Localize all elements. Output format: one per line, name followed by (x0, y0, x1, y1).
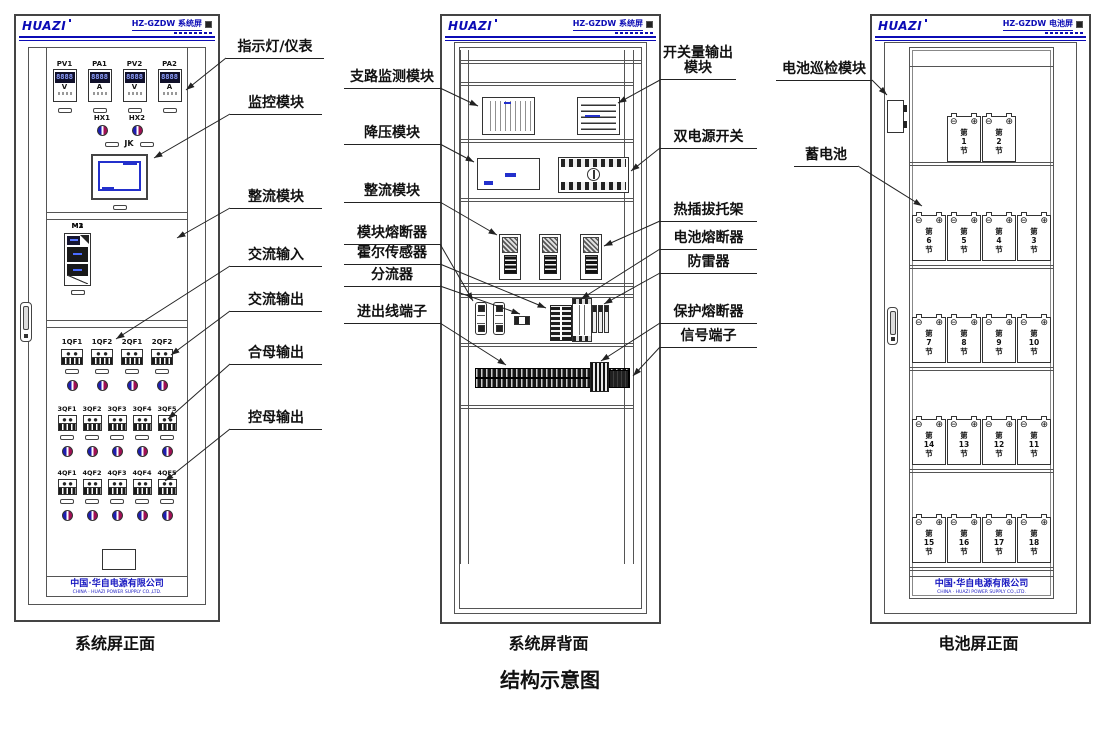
top-beam (909, 66, 1054, 67)
annotation-closing-bus-output: 合母输出 (230, 346, 322, 365)
minus-terminal-icon: ⊖ (985, 216, 993, 227)
label-plate (60, 435, 74, 440)
indicator-lamp-icon (87, 446, 98, 457)
meter-dashes (93, 92, 107, 95)
battery-tab (986, 314, 992, 318)
shelf (460, 405, 634, 409)
plus-terminal-icon: ⊕ (1005, 216, 1013, 227)
meter-dashes (58, 92, 72, 95)
battery-tab (916, 314, 922, 318)
plus-terminal-icon: ⊕ (1005, 420, 1013, 431)
battery-tab (1006, 212, 1012, 216)
annotation-battery-fuse: 电池熔断器 (660, 231, 757, 250)
battery-tab (986, 212, 992, 216)
annotation-dual-power-switch: 双电源开关 (660, 130, 757, 149)
breaker-icon[interactable] (151, 349, 173, 365)
minus-terminal-icon: ⊖ (1020, 318, 1028, 329)
battery-label-suffix: 节 (913, 347, 945, 356)
battery-tab (951, 113, 957, 117)
battery-tab (1021, 314, 1027, 318)
annotation-battery-inspection: 电池巡检模块 (776, 62, 872, 81)
battery-label-prefix: 第 (948, 128, 980, 137)
battery-label-prefix: 第 (1018, 227, 1050, 236)
battery-number: 17 (983, 538, 1015, 547)
header-rule-thin (19, 40, 215, 41)
battery-label-prefix: 第 (948, 329, 980, 338)
label-plate (65, 369, 79, 374)
battery-number: 10 (1018, 338, 1050, 347)
battery-tab (936, 514, 942, 518)
annotation-protection-fuse: 保护熔断器 (660, 305, 757, 324)
huazi-logo: HUAZI (878, 19, 922, 33)
indicator-lamp-icon (67, 380, 78, 391)
battery-tab (1041, 212, 1047, 216)
label-plate (110, 435, 124, 440)
caption-system-front: 系统屏正面 (14, 630, 216, 654)
battery-label-suffix: 节 (1018, 547, 1050, 556)
battery-tab (971, 514, 977, 518)
battery-tab (1006, 314, 1012, 318)
annotation-buck-module: 降压模块 (344, 126, 440, 145)
annotation-control-bus-output: 控母输出 (230, 411, 322, 430)
battery-label-suffix: 节 (983, 449, 1015, 458)
breaker-row-closing-bus: 3QF1 3QF2 3QF3 (46, 405, 188, 457)
battery-label-suffix: 节 (948, 245, 980, 254)
indicator-lamp-icon (97, 125, 108, 136)
corner-mark (80, 235, 89, 244)
meter-name: PA2 (162, 60, 177, 68)
battery-tab (971, 416, 977, 420)
screen-footer (102, 187, 114, 189)
breaker-icon[interactable] (108, 415, 127, 431)
breaker-cell: 1QF2 (91, 338, 113, 391)
module-display (67, 236, 80, 245)
battery-number: 14 (913, 440, 945, 449)
battery-label-prefix: 第 (913, 329, 945, 338)
minus-terminal-icon: ⊖ (1020, 216, 1028, 227)
rectifier-back (499, 234, 521, 280)
battery-tab (1006, 514, 1012, 518)
model-subtext-dashes (1045, 32, 1083, 34)
battery-label-suffix: 节 (1018, 245, 1050, 254)
breaker-cell: 3QF5 (158, 405, 177, 457)
label-plate (93, 108, 107, 113)
label-plate (71, 290, 85, 295)
plus-terminal-icon: ⊕ (935, 216, 943, 227)
label-plate (128, 108, 142, 113)
plus-terminal-icon: ⊕ (1040, 518, 1048, 529)
battery-shelf (909, 469, 1054, 473)
label-plate (135, 499, 149, 504)
structure-diagram: HUAZI HZ-GZDW 系统屏 PV1 8888 V (0, 0, 1100, 756)
meter-name: PA1 (92, 60, 107, 68)
shelf (460, 294, 634, 298)
battery-label-suffix: 节 (983, 547, 1015, 556)
module-block (67, 247, 88, 262)
battery-number: 12 (983, 440, 1015, 449)
battery-tab (971, 212, 977, 216)
top-beam (459, 60, 642, 64)
breaker-name: 1QF1 (62, 338, 82, 347)
battery-number: 18 (1018, 538, 1050, 547)
battery-tab (971, 113, 977, 117)
minus-terminal-icon: ⊖ (915, 420, 923, 431)
model-text: HZ-GZDW 系统屏 (573, 18, 643, 31)
breaker-icon[interactable] (133, 479, 152, 495)
battery-cell: ⊖⊕ 第 17 节 (982, 517, 1016, 563)
annotation-signal-terminal: 信号端子 (660, 329, 757, 348)
model-label: HZ-GZDW 系统屏 (573, 18, 653, 34)
annotation-hall-sensor: 霍尔传感器 (344, 246, 440, 265)
shelf (460, 198, 634, 202)
battery-label-suffix: 节 (983, 146, 1015, 155)
buck-module (477, 158, 540, 190)
meter-unit: V (125, 83, 145, 92)
label-plate (135, 435, 149, 440)
battery-cell: ⊖⊕ 第 16 节 (947, 517, 981, 563)
door-handle[interactable] (20, 302, 32, 342)
plus-terminal-icon: ⊕ (1005, 318, 1013, 329)
label-plate (60, 499, 74, 504)
label-plate (160, 499, 174, 504)
minus-terminal-icon: ⊖ (950, 518, 958, 529)
annotation-ac-input: 交流输入 (230, 248, 322, 267)
minus-terminal-icon: ⊖ (950, 117, 958, 128)
battery-cell: ⊖⊕ 第 6 节 (912, 215, 946, 261)
rectifier-back (539, 234, 561, 280)
battery-label-prefix: 第 (913, 529, 945, 538)
right-rail (624, 50, 634, 564)
module-handle[interactable] (67, 275, 88, 284)
battery-label-prefix: 第 (1018, 431, 1050, 440)
breaker-cell: 3QF3 (108, 405, 127, 457)
company-name-en: CHINA · HUAZI POWER SUPPLY CO.,LTD. (46, 590, 188, 596)
meter-body: 8888 V (53, 69, 77, 102)
indicator-hx2: HX2 (121, 114, 153, 136)
battery-cell: ⊖⊕ 第 12 节 (982, 419, 1016, 465)
battery-inspection-module (887, 100, 904, 133)
plus-terminal-icon: ⊕ (970, 518, 978, 529)
plus-terminal-icon: ⊕ (970, 216, 978, 227)
battery-cell: ⊖⊕ 第 5 节 (947, 215, 981, 261)
annotation-branch-monitor: 支路监测模块 (344, 70, 440, 89)
annotation-storage-battery: 蓄电池 (794, 148, 858, 167)
module-name: M3 (72, 222, 84, 230)
header-rule (875, 36, 1086, 38)
battery-tab (1006, 416, 1012, 420)
breaker-icon[interactable] (83, 415, 102, 431)
minus-terminal-icon: ⊖ (950, 318, 958, 329)
annotation-switch-output-module: 开关量输出模块 (660, 46, 736, 80)
breaker-icon[interactable] (58, 479, 77, 495)
breaker-icon[interactable] (121, 349, 143, 365)
breaker-icon[interactable] (133, 415, 152, 431)
protection-fuse (590, 362, 609, 392)
battery-cabinet: HUAZI HZ-GZDW 电池屏 ⊖⊕ 第 1 (870, 14, 1091, 624)
battery-tab (986, 113, 992, 117)
battery-label-prefix: 第 (948, 227, 980, 236)
cabinet-header: HUAZI HZ-GZDW 系统屏 (442, 16, 659, 36)
battery-number: 15 (913, 538, 945, 547)
indicator-lamp-icon (132, 125, 143, 136)
breaker-cell: 3QF4 (133, 405, 152, 457)
battery-number: 3 (1018, 236, 1050, 245)
indicator-name: HX1 (94, 114, 110, 122)
label-plate (95, 369, 109, 374)
battery-tab (1021, 416, 1027, 420)
rectifier-back (580, 234, 602, 280)
battery-tab (916, 416, 922, 420)
meter-dashes (163, 92, 177, 95)
shunt (514, 316, 530, 325)
huazi-logo: HUAZI (22, 19, 66, 33)
label-plate (163, 108, 177, 113)
battery-label-suffix: 节 (913, 245, 945, 254)
battery-row-2: ⊖⊕ 第 6 节 ⊖⊕ 第 5 节 ⊖⊕ 第 4 (910, 215, 1055, 261)
breaker-icon[interactable] (83, 479, 102, 495)
battery-number: 9 (983, 338, 1015, 347)
label-plate (58, 108, 72, 113)
breaker-cell: 2QF2 (151, 338, 173, 391)
battery-tab (1041, 416, 1047, 420)
meter-row: PV1 8888 V PA1 8888 A (46, 60, 188, 113)
battery-tab (1021, 212, 1027, 216)
battery-tab (916, 514, 922, 518)
battery-number: 4 (983, 236, 1015, 245)
breaker-name: 4QF4 (133, 469, 152, 477)
company-name-cn: 中国·华自电源有限公司 (909, 579, 1054, 590)
plus-terminal-icon: ⊕ (970, 318, 978, 329)
minus-terminal-icon: ⊖ (985, 117, 993, 128)
terminal-row (561, 159, 626, 167)
breaker-cell: 2QF1 (121, 338, 143, 391)
plus-terminal-icon: ⊕ (935, 518, 943, 529)
breaker-cell: 4QF2 (83, 469, 102, 521)
indicator-lamp-icon (162, 446, 173, 457)
battery-cell: ⊖⊕ 第 4 节 (982, 215, 1016, 261)
header-badge-icon (205, 21, 212, 28)
meter-display: 8888 (90, 72, 110, 83)
header-rule (19, 36, 215, 38)
breaker-icon[interactable] (158, 479, 177, 495)
battery-row-4: ⊖⊕ 第 14 节 ⊖⊕ 第 13 节 ⊖⊕ 第 12 (910, 419, 1055, 465)
battery-label-suffix: 节 (983, 245, 1015, 254)
trademark-dot-icon (495, 19, 498, 22)
annotation-hot-swap-bracket: 热插拔托架 (660, 203, 757, 222)
battery-tab (986, 514, 992, 518)
battery-label-suffix: 节 (948, 547, 980, 556)
minus-terminal-icon: ⊖ (915, 318, 923, 329)
minus-terminal-icon: ⊖ (985, 318, 993, 329)
battery-number: 16 (948, 538, 980, 547)
battery-label-suffix: 节 (1018, 449, 1050, 458)
plus-terminal-icon: ⊕ (970, 420, 978, 431)
screen-titlebar (123, 162, 137, 165)
indicator-lamp-icon (62, 446, 73, 457)
door-handle[interactable] (887, 307, 898, 345)
label-plate (105, 142, 119, 147)
divider (46, 320, 188, 321)
battery-label-prefix: 第 (913, 431, 945, 440)
model-text: HZ-GZDW 电池屏 (1003, 18, 1073, 31)
annotation-rectifier-back: 整流模块 (344, 184, 440, 203)
annotation-shunt: 分流器 (344, 268, 440, 287)
indicator-lamp-icon (87, 510, 98, 521)
label-plate (160, 435, 174, 440)
label-plate (110, 499, 124, 504)
header-badge-icon (646, 21, 653, 28)
rotary-switch-icon[interactable] (587, 168, 600, 181)
plus-terminal-icon: ⊕ (935, 318, 943, 329)
indicator-lamp-icon (112, 446, 123, 457)
battery-number: 1 (948, 137, 980, 146)
battery-label-suffix: 节 (948, 146, 980, 155)
minus-terminal-icon: ⊖ (985, 420, 993, 431)
panel-meter: PA2 8888 A (158, 60, 182, 113)
meter-name: PV1 (57, 60, 72, 68)
header-rule-thin (875, 40, 1086, 41)
branch-monitor-module (482, 97, 535, 135)
minus-terminal-icon: ⊖ (915, 216, 923, 227)
annotation-indicator-meters: 指示灯/仪表 (226, 40, 324, 59)
battery-tab (1041, 314, 1047, 318)
battery-row-5: ⊖⊕ 第 15 节 ⊖⊕ 第 16 节 ⊖⊕ 第 17 (910, 517, 1055, 563)
meter-display: 8888 (55, 72, 75, 83)
model-subtext-dashes (174, 32, 212, 34)
panel-meter: PA1 8888 A (88, 60, 112, 113)
cabinet-header: HUAZI HZ-GZDW 系统屏 (16, 16, 218, 36)
indicator-hx1: HX1 (86, 114, 118, 136)
breaker-row-ac: 1QF1 1QF2 2QF1 (46, 338, 188, 391)
trademark-dot-icon (925, 19, 928, 22)
panel-meter: PV2 8888 V (123, 60, 147, 113)
battery-label-suffix: 节 (913, 547, 945, 556)
battery-tab (936, 314, 942, 318)
battery-tab (1041, 514, 1047, 518)
header-rule-thin (445, 40, 656, 41)
document-pocket (102, 549, 136, 570)
meter-unit: A (90, 83, 110, 92)
breaker-name: 3QF5 (158, 405, 177, 413)
battery-label-prefix: 第 (983, 329, 1015, 338)
cabinet-header: HUAZI HZ-GZDW 电池屏 (872, 16, 1089, 36)
battery-label-suffix: 节 (913, 449, 945, 458)
indicator-lamp-icon (97, 380, 108, 391)
battery-cell: ⊖⊕ 第 9 节 (982, 317, 1016, 363)
battery-label-prefix: 第 (983, 431, 1015, 440)
minus-terminal-icon: ⊖ (985, 518, 993, 529)
meter-dashes (128, 92, 142, 95)
diagram-title: 结构示意图 (0, 664, 1100, 693)
model-subtext-dashes (615, 32, 653, 34)
divider (46, 219, 188, 220)
battery-tab (986, 416, 992, 420)
battery-tab (951, 314, 957, 318)
company-strip: 中国·华自电源有限公司 CHINA · HUAZI POWER SUPPLY C… (46, 576, 188, 597)
label-plate (85, 499, 99, 504)
breaker-icon[interactable] (91, 349, 113, 365)
plus-terminal-icon: ⊕ (1040, 216, 1048, 227)
dual-power-switch[interactable] (558, 157, 629, 193)
annotation-module-fuse: 模块熔断器 (344, 226, 440, 245)
battery-cell: ⊖⊕ 第 13 节 (947, 419, 981, 465)
indicator-lamp-icon (62, 510, 73, 521)
brand-text: HUAZI (22, 19, 66, 33)
breaker-icon[interactable] (158, 415, 177, 431)
battery-number: 7 (913, 338, 945, 347)
divider (46, 212, 188, 213)
indicator-lamp-icon (127, 380, 138, 391)
battery-cell: ⊖⊕ 第 10 节 (1017, 317, 1051, 363)
breaker-name: 4QF3 (108, 469, 127, 477)
monitoring-screen[interactable] (91, 154, 148, 200)
terminal-row (561, 182, 626, 190)
shelf (460, 139, 634, 143)
breaker-name: 2QF1 (122, 338, 142, 347)
battery-label-suffix: 节 (948, 347, 980, 356)
battery-tab (916, 212, 922, 216)
breaker-name: 3QF3 (108, 405, 127, 413)
breaker-icon[interactable] (108, 479, 127, 495)
battery-label-prefix: 第 (983, 529, 1015, 538)
minus-terminal-icon: ⊖ (1020, 518, 1028, 529)
breaker-name: 2QF2 (152, 338, 172, 347)
battery-cell: ⊖⊕ 第 14 节 (912, 419, 946, 465)
shelf (460, 82, 634, 86)
switch-output-module (577, 97, 620, 135)
panel-meter: PV1 8888 V (53, 60, 77, 113)
annotation-monitor-module: 监控模块 (230, 96, 322, 115)
lightning-arrester (592, 305, 609, 333)
company-name-cn: 中国·华自电源有限公司 (46, 579, 188, 590)
plus-terminal-icon: ⊕ (935, 420, 943, 431)
battery-label-prefix: 第 (948, 529, 980, 538)
breaker-cell: 4QF3 (108, 469, 127, 521)
battery-label-suffix: 节 (948, 449, 980, 458)
breaker-cell: 3QF2 (83, 405, 102, 457)
caption-battery-front: 电池屏正面 (870, 630, 1087, 654)
battery-number: 6 (913, 236, 945, 245)
battery-tab (951, 416, 957, 420)
meter-body: 8888 A (88, 69, 112, 102)
system-front-cabinet: HUAZI HZ-GZDW 系统屏 PV1 8888 V (14, 14, 220, 622)
battery-row-1: ⊖⊕ 第 1 节 ⊖⊕ 第 2 节 (910, 116, 1053, 162)
meter-display: 8888 (160, 72, 180, 83)
breaker-cell: 4QF4 (133, 469, 152, 521)
battery-shelf (909, 367, 1054, 371)
meter-name: PV2 (127, 60, 142, 68)
breaker-name: 3QF2 (83, 405, 102, 413)
brand-text: HUAZI (878, 19, 922, 33)
rectifier-module: M3 (64, 222, 91, 295)
indicator-lamp-icon (137, 446, 148, 457)
breaker-icon[interactable] (61, 349, 83, 365)
divider (46, 327, 188, 328)
left-rail (460, 50, 469, 564)
breaker-name: 3QF1 (58, 405, 77, 413)
battery-row-3: ⊖⊕ 第 7 节 ⊖⊕ 第 8 节 ⊖⊕ 第 9 (910, 317, 1055, 363)
indicator-name: HX2 (129, 114, 145, 122)
meter-body: 8888 V (123, 69, 147, 102)
battery-tab (1021, 514, 1027, 518)
breaker-icon[interactable] (58, 415, 77, 431)
battery-tab (936, 212, 942, 216)
meter-unit: V (55, 83, 75, 92)
battery-shelf (909, 162, 1054, 166)
battery-label-prefix: 第 (983, 128, 1015, 137)
breaker-cell: 4QF1 (58, 469, 77, 521)
brand-text: HUAZI (448, 19, 492, 33)
